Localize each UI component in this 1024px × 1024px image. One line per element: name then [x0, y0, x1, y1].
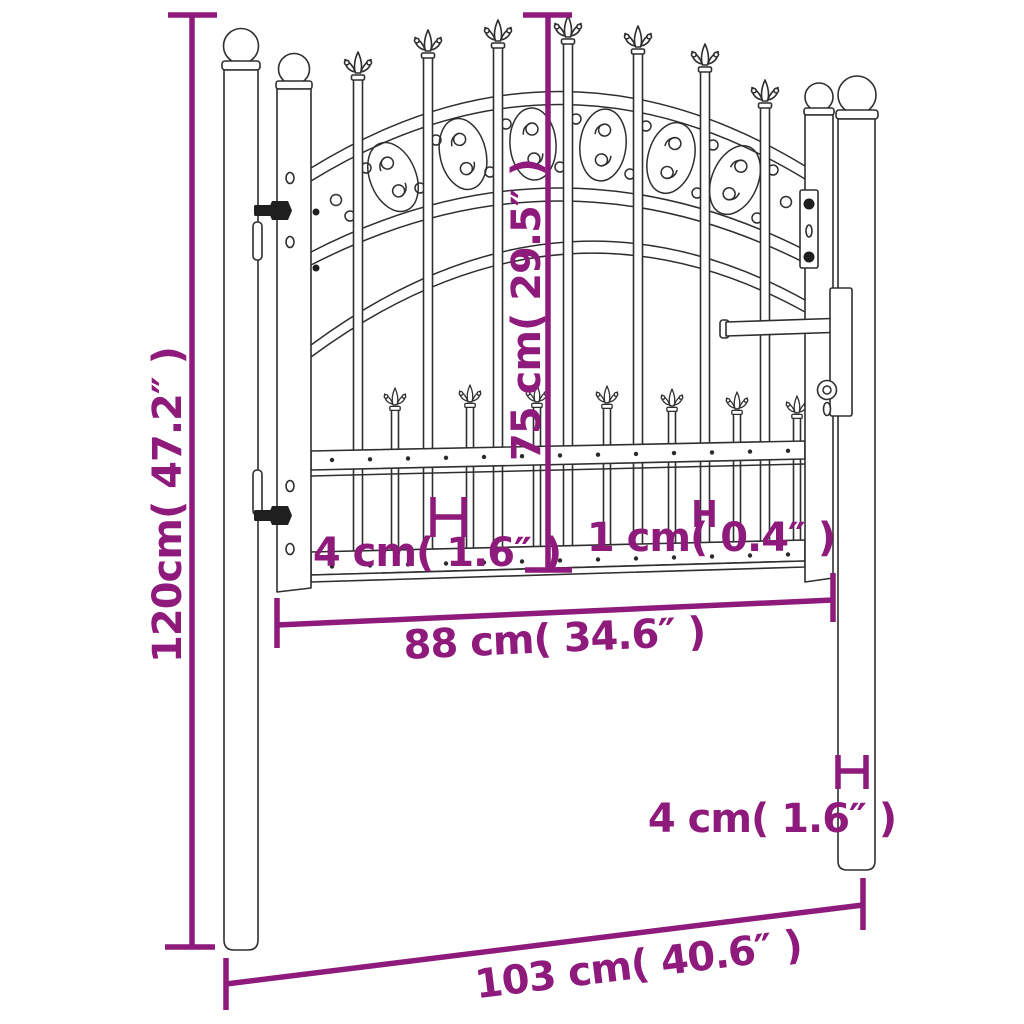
dim-picket-spacing-label: 4 cm( 1.6″ ) — [313, 530, 561, 576]
left-post — [222, 29, 262, 951]
latch-plate — [800, 190, 818, 268]
dim-total-width: 103 cm( 40.6″ ) — [226, 878, 863, 1010]
dim-gate-height-label: 75 cm( 29.5″ ) — [504, 159, 550, 461]
right-post — [836, 76, 878, 870]
middle-rail — [311, 441, 805, 476]
gate-arch-band — [311, 91, 805, 357]
hinge-bolt-top — [254, 201, 292, 220]
dim-total-height-label: 120cm( 47.2″ ) — [145, 347, 191, 663]
gate-diagram-svg: 120cm( 47.2″ ) 75 cm( 29.5″ ) 4 cm( 1.6″… — [0, 0, 1024, 1024]
dim-bar-thickness-label: 1 cm( 0.4″ ) — [587, 515, 835, 561]
dim-gate-width: 88 cm( 34.6″ ) — [277, 573, 833, 669]
dim-picket-spacing: 4 cm( 1.6″ ) — [313, 497, 561, 576]
dim-post-thickness-label: 4 cm( 1.6″ ) — [648, 796, 896, 842]
keyhole — [818, 381, 837, 400]
product-diagram: 120cm( 47.2″ ) 75 cm( 29.5″ ) 4 cm( 1.6″… — [0, 0, 1024, 1024]
tall-pickets — [345, 16, 779, 557]
dim-total-height: 120cm( 47.2″ ) — [145, 15, 217, 947]
